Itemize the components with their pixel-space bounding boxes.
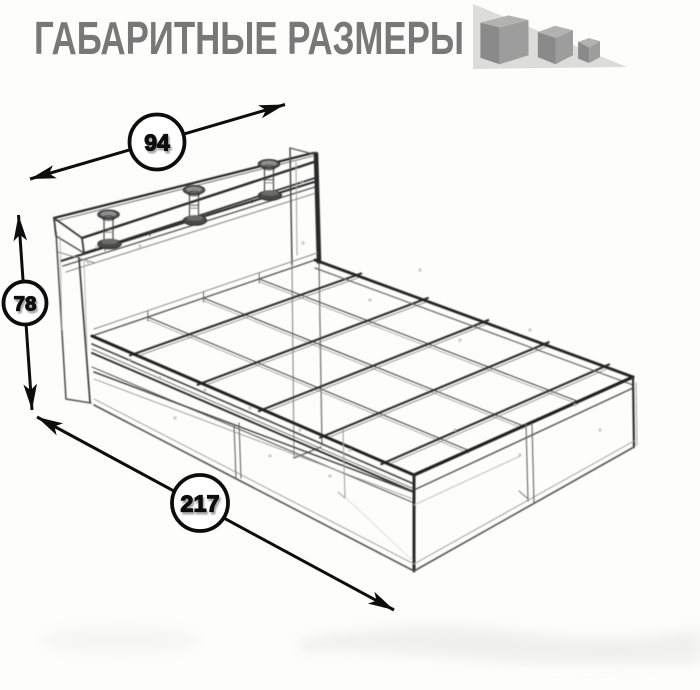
svg-text:217: 217: [180, 491, 219, 517]
svg-text:94: 94: [144, 129, 170, 155]
svg-text:78: 78: [14, 292, 37, 315]
svg-text:ГАБАРИТНЫЕ РАЗМЕРЫ: ГАБАРИТНЫЕ РАЗМЕРЫ: [34, 12, 464, 64]
